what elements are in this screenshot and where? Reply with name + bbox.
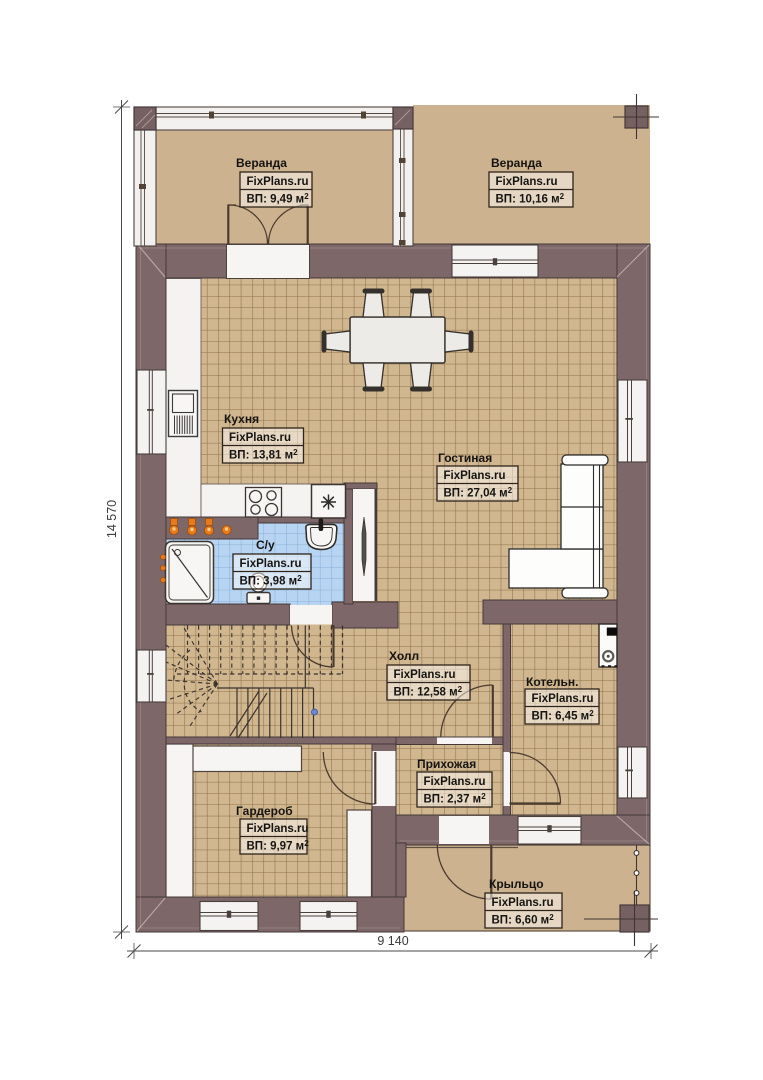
svg-text:FixPlans.ru: FixPlans.ru (394, 669, 456, 681)
svg-text:14 570: 14 570 (105, 500, 119, 538)
svg-text:ВП: 6,45 м2: ВП: 6,45 м2 (532, 709, 595, 723)
svg-text:FixPlans.ru: FixPlans.ru (247, 823, 309, 835)
svg-text:Котельн.: Котельн. (526, 675, 579, 689)
svg-text:FixPlans.ru: FixPlans.ru (424, 776, 486, 788)
svg-text:Веранда: Веранда (236, 156, 287, 170)
svg-text:9 140: 9 140 (377, 934, 408, 948)
svg-text:ВП: 27,04 м2: ВП: 27,04 м2 (444, 486, 513, 500)
svg-text:FixPlans.ru: FixPlans.ru (492, 897, 554, 909)
svg-text:FixPlans.ru: FixPlans.ru (532, 693, 594, 705)
svg-text:ВП: 9,49 м2: ВП: 9,49 м2 (247, 192, 310, 206)
svg-text:FixPlans.ru: FixPlans.ru (444, 470, 506, 482)
svg-text:ВП: 3,98 м2: ВП: 3,98 м2 (240, 574, 303, 588)
svg-text:ВП: 13,81 м2: ВП: 13,81 м2 (229, 448, 298, 462)
svg-text:ВП: 12,58 м2: ВП: 12,58 м2 (394, 685, 463, 699)
svg-text:Холл: Холл (389, 649, 419, 663)
svg-text:ВП: 10,16 м2: ВП: 10,16 м2 (496, 192, 565, 206)
svg-text:FixPlans.ru: FixPlans.ru (247, 176, 309, 188)
svg-text:Веранда: Веранда (491, 156, 542, 170)
svg-text:С/у: С/у (256, 538, 275, 552)
svg-text:ВП: 9,97 м2: ВП: 9,97 м2 (247, 839, 310, 853)
svg-text:Кухня: Кухня (224, 412, 259, 426)
svg-text:ВП: 6,60 м2: ВП: 6,60 м2 (492, 913, 555, 927)
svg-text:ВП: 2,37 м2: ВП: 2,37 м2 (424, 792, 487, 806)
svg-text:Прихожая: Прихожая (417, 757, 476, 771)
svg-text:FixPlans.ru: FixPlans.ru (240, 558, 302, 570)
svg-text:Гостиная: Гостиная (438, 451, 492, 465)
svg-text:Крыльцо: Крыльцо (489, 877, 544, 891)
svg-text:Гардероб: Гардероб (236, 804, 293, 818)
svg-text:FixPlans.ru: FixPlans.ru (496, 176, 558, 188)
svg-text:FixPlans.ru: FixPlans.ru (229, 432, 291, 444)
